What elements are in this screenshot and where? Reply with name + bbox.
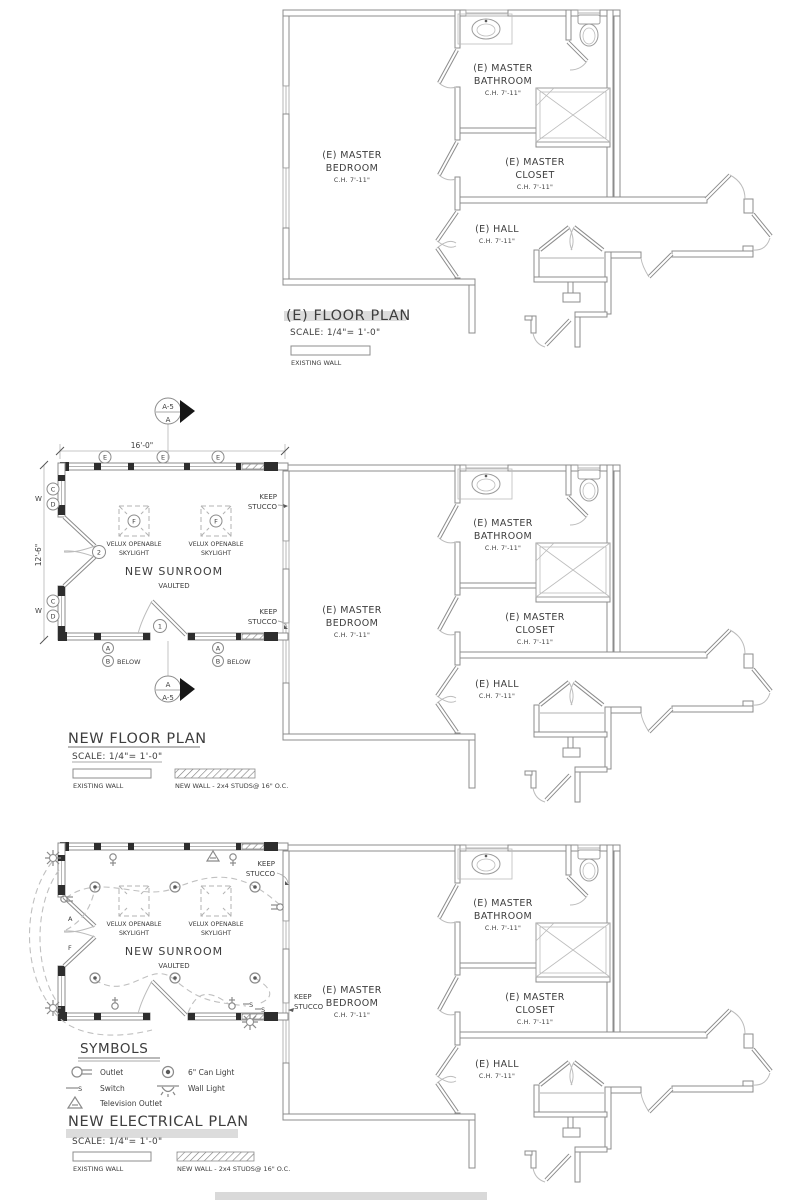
wall-light-icon (157, 1086, 179, 1097)
wall-light-label: Wall Light (188, 1084, 225, 1093)
keep-stucco-line1: KEEP (259, 608, 277, 616)
below-markers: A B BELOW A B BELOW (103, 643, 252, 667)
outlet-icon (271, 904, 283, 910)
existing-wall-label: EXISTING WALL (73, 782, 124, 790)
keep-stucco-line1: KEEP (257, 860, 275, 868)
electrical-plan-legend: EXISTING WALL NEW WALL - 2x4 STUDS@ 16" … (73, 1152, 290, 1173)
keep-stucco-line2: STUCCO (246, 870, 276, 878)
electrical-plan-scale: SCALE: 1/4"= 1'-0" (72, 1137, 163, 1147)
door-leaf-a: A (68, 915, 73, 923)
can-light-icon (170, 973, 180, 983)
keep-stucco-line1: KEEP (294, 993, 312, 1001)
width-dim-text: 16'-0" (131, 441, 154, 450)
existing-wall-label: EXISTING WALL (73, 1165, 124, 1173)
new-wall-swatch (175, 769, 255, 778)
window-markers-top: E E E (99, 451, 224, 463)
new-floor-plan-scale: SCALE: 1/4"= 1'-0" (72, 752, 163, 762)
existing-wall-label: EXISTING WALL (291, 359, 342, 367)
marker-a: A (106, 645, 111, 653)
depth-dim-text: 12'-6" (34, 544, 43, 567)
depth-dimension: 12'-6" (34, 461, 48, 644)
new-floor-plan: 16'-0" 12'-6" E E E W C D W C D A B BELO… (34, 398, 771, 802)
new-wall-swatch (177, 1152, 254, 1161)
legend-row-can-light: 6" Can Light (163, 1067, 235, 1078)
electrical-plan-title: NEW ELECTRICAL PLAN (68, 1114, 249, 1130)
outlet-label: Outlet (100, 1068, 123, 1077)
outlet-icon (112, 997, 118, 1009)
existing-plan-title: (E) FLOOR PLAN (286, 308, 411, 324)
outlet-icon (110, 854, 116, 866)
section-arrow (180, 678, 195, 701)
outlet-icon (72, 1067, 92, 1077)
legend-row-wall-light: Wall Light (157, 1084, 225, 1097)
door-leaf-f: F (68, 944, 72, 952)
keep-stucco-line1: KEEP (259, 493, 277, 501)
marker-b: B (216, 658, 220, 666)
keep-stucco-note-lower: KEEP STUCCO (248, 608, 288, 629)
marker-e: E (161, 454, 165, 462)
marker-f: F (214, 518, 218, 526)
section-letter: A (166, 681, 171, 689)
marker-d: D (50, 613, 55, 621)
switch-icon: S (261, 1006, 265, 1014)
can-light-icon (163, 1067, 174, 1078)
can-light-icon (90, 973, 100, 983)
wall-light-icon (45, 1000, 61, 1016)
section-marker-bottom: A A-5 (155, 641, 195, 702)
floor-plan-drawing: (E) MASTER BEDROOM C.H. 7'-11" (E) MASTE… (0, 0, 791, 1200)
outlet-icon (229, 997, 235, 1009)
symbols-title: SYMBOLS (80, 1041, 148, 1057)
existing-floor-plan: (E) FLOOR PLAN SCALE: 1/4"= 1'-0" EXISTI… (283, 10, 771, 367)
keep-stucco-line2: STUCCO (248, 618, 278, 626)
new-wall-label: NEW WALL - 2x4 STUDS@ 16" O.C. (175, 782, 288, 790)
marker-f: F (132, 518, 136, 526)
section-arrow (180, 400, 195, 423)
television-outlet-icon (207, 851, 219, 861)
cut-off-element (215, 1192, 487, 1200)
symbols-legend: SYMBOLS Outlet S Switch Television Outle… (66, 1041, 234, 1108)
section-letter: A (166, 416, 171, 424)
below-label: BELOW (227, 658, 251, 666)
legend-row-outlet: Outlet (72, 1067, 123, 1077)
existing-wall-swatch (73, 769, 151, 778)
below-label: BELOW (117, 658, 141, 666)
can-light-icon (250, 973, 260, 983)
marker-c: C (51, 598, 56, 606)
keynote-2: 2 (97, 549, 101, 557)
section-ref: A-5 (162, 403, 174, 411)
outlet-icon (61, 896, 73, 902)
marker-e: E (103, 454, 107, 462)
keynote-1: 1 (158, 623, 162, 631)
keep-stucco-line2: STUCCO (294, 1003, 324, 1011)
switch-label: Switch (100, 1084, 125, 1093)
outlet-icon (230, 854, 236, 866)
can-light-icon (250, 882, 260, 892)
legend-row-television: Television Outlet (68, 1097, 162, 1108)
switch-icon: S (249, 1001, 253, 1009)
keep-stucco-note-upper: KEEP STUCCO (248, 493, 288, 511)
marker-e: E (216, 454, 220, 462)
can-light-label: 6" Can Light (188, 1068, 234, 1077)
width-dimension: 16'-0" (56, 441, 289, 459)
wall-light-icon (45, 850, 61, 866)
existing-wall-swatch (73, 1152, 151, 1161)
marker-w: W (35, 495, 42, 503)
marker-d: D (50, 501, 55, 509)
marker-b: B (106, 658, 110, 666)
new-electrical-plan: S S A F KEEP STUCCO KEEP STUCCO SYMBOLS … (30, 842, 772, 1182)
new-floor-plan-title: NEW FLOOR PLAN (68, 731, 207, 747)
existing-plan-legend: EXISTING WALL (291, 346, 370, 367)
wall-light-icon (242, 1014, 258, 1030)
new-wall-label: NEW WALL - 2x4 STUDS@ 16" O.C. (177, 1165, 290, 1173)
section-ref: A-5 (162, 694, 174, 702)
keep-stucco-note-lower: KEEP STUCCO (288, 993, 324, 1012)
marker-w: W (35, 607, 42, 615)
marker-a: A (216, 645, 221, 653)
switch-icon: S (78, 1085, 82, 1093)
existing-wall-swatch (291, 346, 370, 355)
television-outlet-label: Television Outlet (99, 1099, 162, 1108)
keep-stucco-line2: STUCCO (248, 503, 278, 511)
legend-row-switch: S Switch (66, 1084, 125, 1093)
television-outlet-icon (68, 1097, 82, 1108)
architectural-sheet: (E) MASTER BEDROOM C.H. 7'-11" (E) MASTE… (0, 0, 791, 1200)
existing-plan-scale: SCALE: 1/4"= 1'-0" (290, 328, 381, 338)
new-floor-plan-legend: EXISTING WALL NEW WALL - 2x4 STUDS@ 16" … (73, 769, 288, 790)
marker-c: C (51, 486, 56, 494)
